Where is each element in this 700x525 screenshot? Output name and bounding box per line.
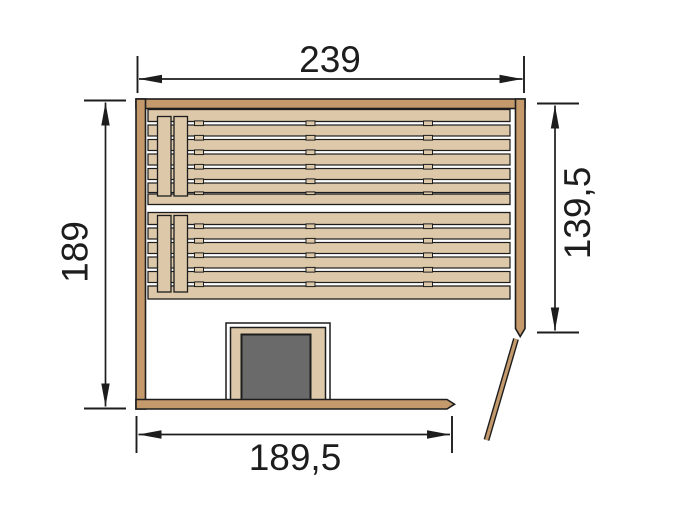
dimension-value-bottom: 189,5 (249, 437, 342, 478)
slat-joint-mark (306, 238, 315, 243)
slat-joint-mark (306, 224, 315, 229)
slat-joint-mark (195, 150, 204, 155)
slat-joint-mark (424, 164, 433, 169)
slat-joint-mark (424, 253, 433, 258)
dimension-left-height: 189 (55, 101, 127, 409)
bench-support-board (174, 216, 188, 293)
bench-slat (148, 243, 510, 254)
bottom-wall (136, 400, 455, 410)
slat-joint-mark (306, 282, 315, 287)
heater (242, 335, 311, 403)
dimension-value-right: 139,5 (557, 167, 598, 260)
bench-slat (148, 140, 510, 151)
bench-slat (148, 272, 510, 283)
door-leaf (487, 339, 517, 440)
sauna-floor-plan: 239 189 139,5 189,5 (0, 0, 700, 525)
slat-joint-mark (306, 192, 315, 195)
slat-joint-mark (424, 150, 433, 155)
slat-joint-mark (306, 267, 315, 272)
arrow-right-icon (427, 430, 450, 438)
arrow-up-icon (551, 106, 559, 129)
bench-slat (148, 228, 510, 239)
slat-joint-mark (195, 135, 204, 140)
arrow-down-icon (551, 308, 559, 331)
slat-joint-mark (195, 179, 204, 184)
top-wall (136, 99, 525, 109)
slat-joint-mark (424, 224, 433, 229)
slat-joint-mark (306, 121, 315, 126)
slat-joint-mark (195, 121, 204, 126)
slat-joint-mark (306, 150, 315, 155)
bench-edge-plank (148, 194, 510, 205)
slat-joint-mark (424, 121, 433, 126)
slat-joint-mark (424, 238, 433, 243)
bench-slat (148, 125, 510, 136)
slat-joint-mark (195, 267, 204, 272)
slat-joint-mark (424, 282, 433, 287)
slat-joint-mark (424, 192, 433, 195)
bench-edge-plank (148, 213, 510, 225)
dimension-value-top: 239 (299, 39, 361, 80)
slat-joint-mark (306, 253, 315, 258)
slat-joint-mark (306, 179, 315, 184)
dimension-value-left: 189 (55, 221, 96, 283)
left-wall (136, 99, 146, 409)
right-wall (516, 99, 526, 337)
arrow-up-icon (101, 103, 109, 126)
slat-joint-mark (306, 164, 315, 169)
bench-slat (148, 169, 510, 180)
dimension-bottom-width: 189,5 (137, 416, 453, 478)
heater-area (226, 323, 330, 408)
bench-edge-plank (148, 110, 510, 122)
arrow-down-icon (101, 384, 109, 407)
arrow-left-icon (139, 430, 162, 438)
dimension-right-height: 139,5 (537, 104, 598, 333)
bench-edge-plank (148, 286, 510, 299)
slat-joint-mark (424, 267, 433, 272)
slat-joint-mark (195, 253, 204, 258)
bench-slat (148, 257, 510, 268)
bench-slat (148, 154, 510, 165)
floor-plan-drawing: 239 189 139,5 189,5 (0, 0, 700, 525)
bench-slat (148, 183, 510, 193)
dimension-top-width: 239 (138, 39, 525, 93)
slat-joint-mark (424, 179, 433, 184)
bench-support-board (174, 117, 188, 197)
slat-joint-mark (424, 135, 433, 140)
arrow-left-icon (139, 75, 162, 83)
slat-joint-mark (195, 164, 204, 169)
slat-joint-mark (195, 238, 204, 243)
bench-support-board (158, 117, 172, 197)
bench-support-board (158, 216, 172, 293)
slat-joint-mark (195, 192, 204, 195)
arrow-right-icon (500, 75, 523, 83)
slat-joint-mark (195, 224, 204, 229)
door (487, 339, 517, 440)
slat-joint-mark (195, 282, 204, 287)
slat-joint-mark (306, 135, 315, 140)
